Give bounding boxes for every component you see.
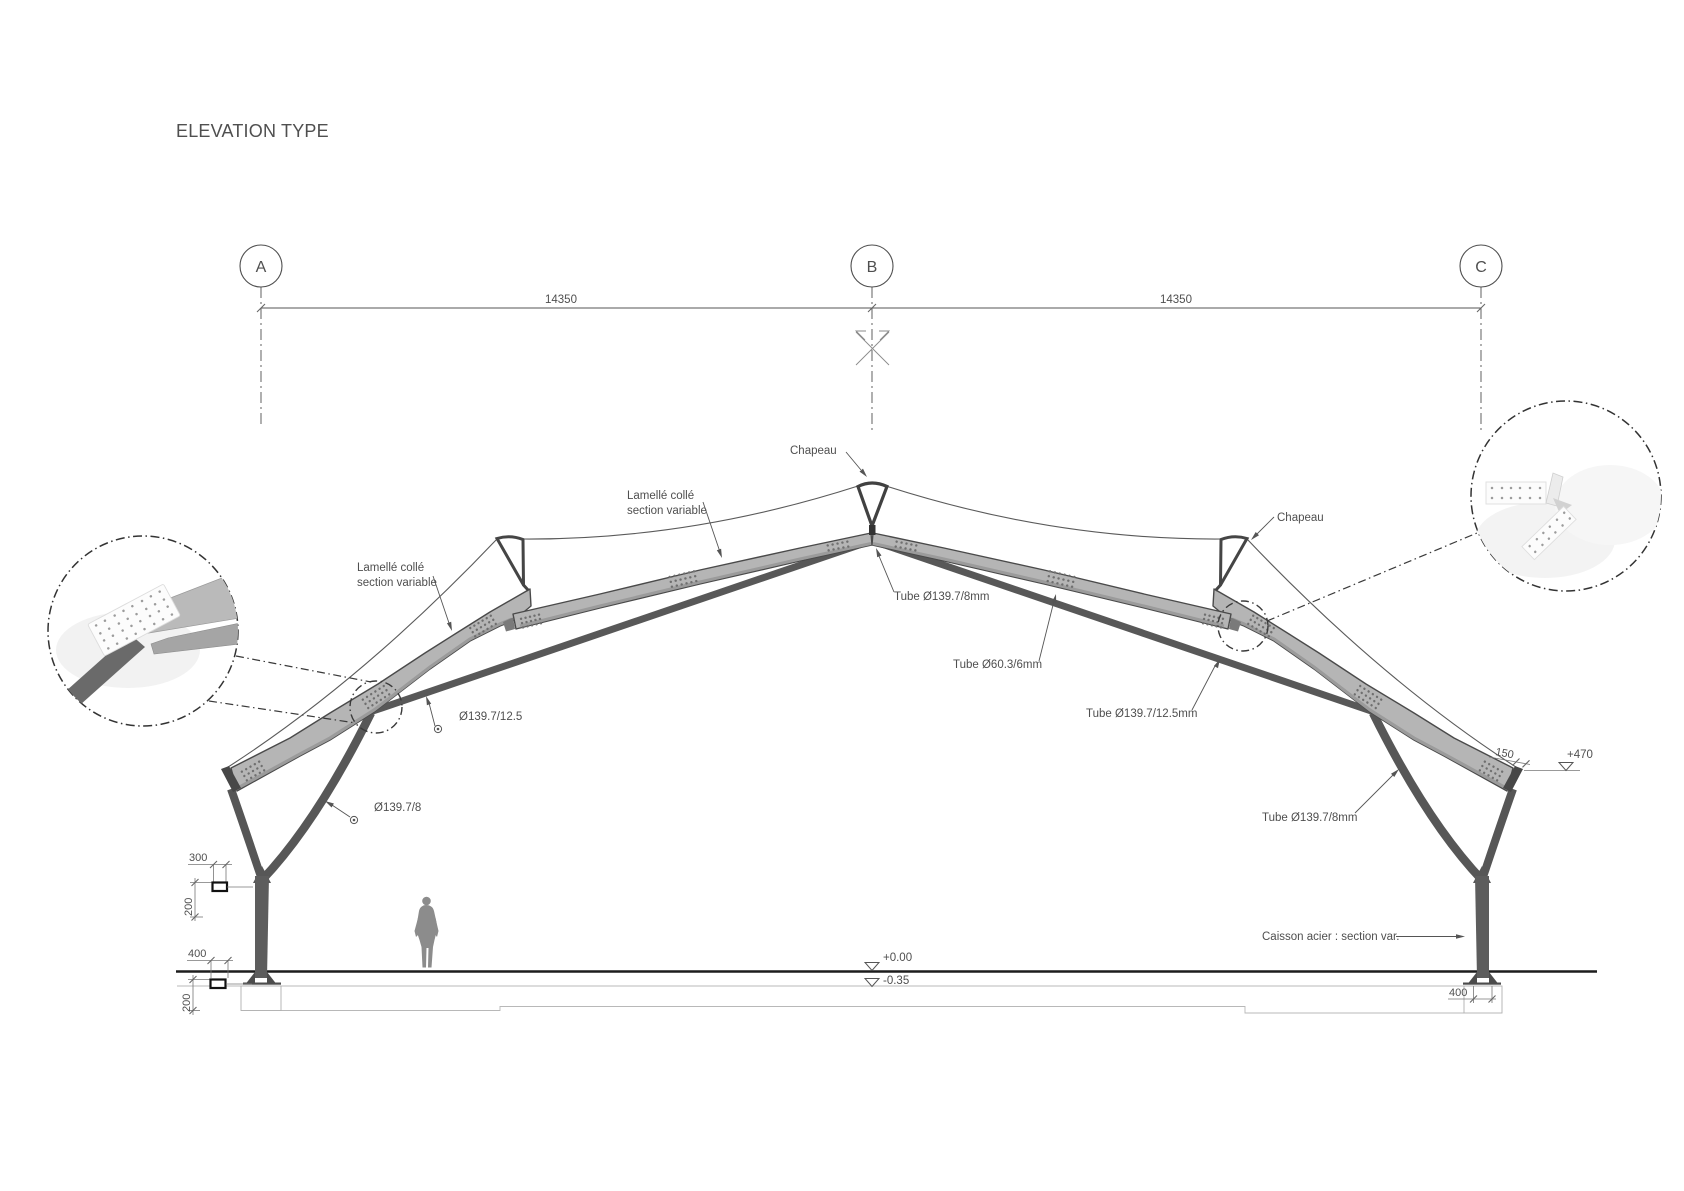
- svg-text:+470: +470: [1567, 749, 1593, 761]
- svg-text:C: C: [1475, 259, 1487, 276]
- svg-text:14350: 14350: [545, 294, 577, 306]
- svg-text:150: 150: [1494, 746, 1514, 761]
- svg-text:400: 400: [188, 948, 206, 960]
- svg-text:Tube Ø60.3/6mm: Tube Ø60.3/6mm: [953, 659, 1042, 671]
- svg-text:300: 300: [189, 852, 207, 864]
- svg-text:Chapeau: Chapeau: [790, 445, 837, 457]
- svg-text:B: B: [867, 259, 878, 276]
- svg-text:Caisson acier : section var.: Caisson acier : section var.: [1262, 931, 1399, 943]
- svg-text:Ø139.7/12.5: Ø139.7/12.5: [459, 711, 522, 723]
- svg-text:200: 200: [181, 994, 193, 1012]
- svg-text:section variable: section variable: [627, 505, 707, 517]
- svg-text:Tube Ø139.7/12.5mm: Tube Ø139.7/12.5mm: [1086, 708, 1197, 720]
- svg-text:200: 200: [183, 898, 195, 916]
- svg-text:Lamellé collé: Lamellé collé: [627, 490, 694, 502]
- svg-text:Chapeau: Chapeau: [1277, 512, 1324, 524]
- svg-text:section variable: section variable: [357, 577, 437, 589]
- svg-text:-0.35: -0.35: [883, 975, 909, 987]
- svg-text:A: A: [256, 259, 267, 276]
- svg-text:Ø139.7/8: Ø139.7/8: [374, 802, 421, 814]
- svg-text:ELEVATION TYPE: ELEVATION TYPE: [176, 121, 329, 141]
- svg-text:Lamellé collé: Lamellé collé: [357, 562, 424, 574]
- svg-text:+0.00: +0.00: [883, 952, 912, 964]
- svg-text:400: 400: [1449, 987, 1467, 999]
- svg-text:Tube Ø139.7/8mm: Tube Ø139.7/8mm: [894, 591, 989, 603]
- svg-text:Tube Ø139.7/8mm: Tube Ø139.7/8mm: [1262, 812, 1357, 824]
- svg-text:14350: 14350: [1160, 294, 1192, 306]
